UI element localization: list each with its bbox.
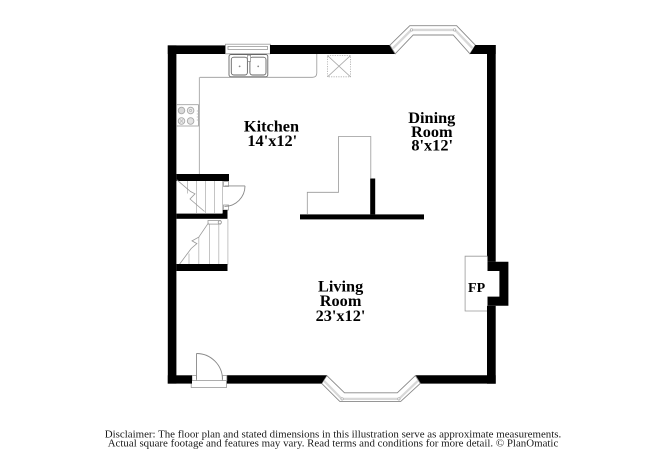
svg-text:8'x12': 8'x12' <box>411 136 453 155</box>
svg-text:Actual square footage and feat: Actual square footage and features may v… <box>108 438 559 450</box>
svg-text:23'x12': 23'x12' <box>316 306 366 325</box>
svg-text:FP: FP <box>468 281 486 296</box>
svg-text:14'x12': 14'x12' <box>247 131 297 150</box>
